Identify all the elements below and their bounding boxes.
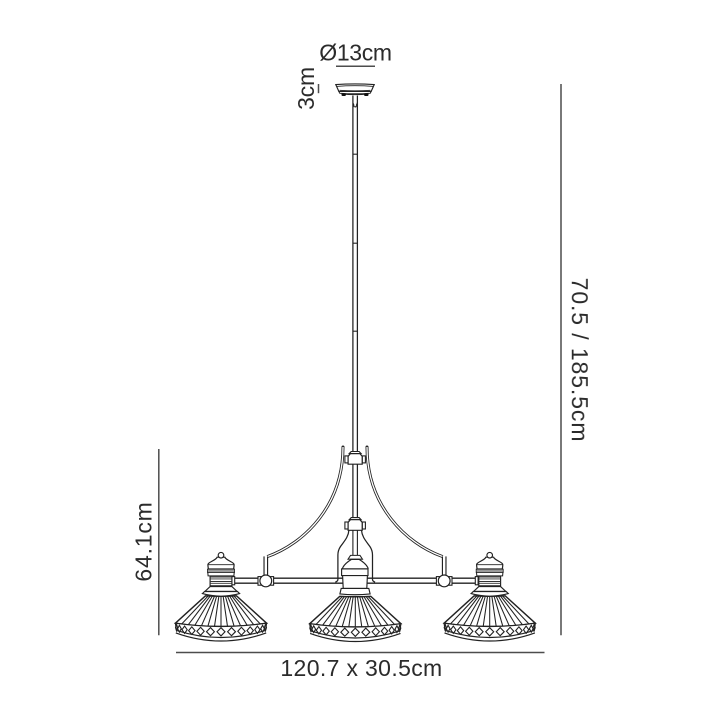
- svg-text:70.5 / 185.5cm: 70.5 / 185.5cm: [567, 278, 593, 443]
- svg-text:120.7 x 30.5cm: 120.7 x 30.5cm: [280, 655, 442, 681]
- svg-text:Ø13cm: Ø13cm: [319, 40, 391, 66]
- svg-text:64.1cm: 64.1cm: [131, 501, 157, 581]
- svg-text:3cm: 3cm: [293, 67, 319, 110]
